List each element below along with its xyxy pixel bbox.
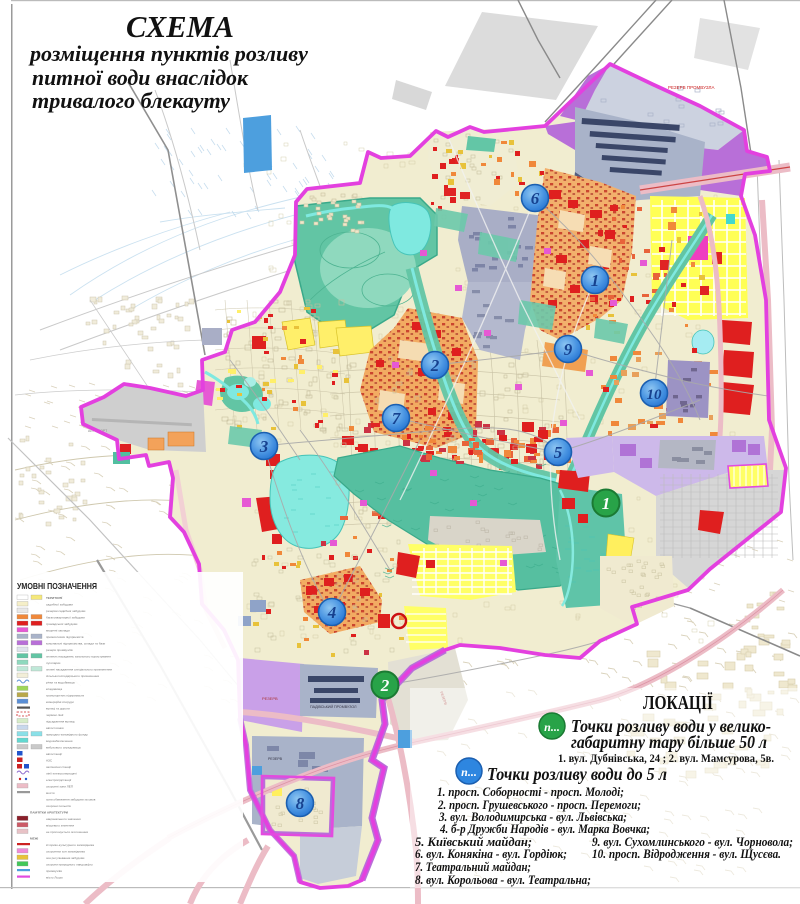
svg-text:2: 2 [430, 356, 440, 375]
svg-text:резерв промвузлів: резерв промвузлів [46, 648, 73, 652]
svg-text:медичні заклади: медичні заклади [46, 629, 70, 633]
svg-text:8: 8 [296, 794, 305, 813]
svg-text:5: 5 [554, 443, 563, 462]
svg-text:п...: п... [461, 765, 477, 779]
svg-text:автостанції: автостанції [46, 752, 62, 756]
svg-text:комунальні підприємства, склад: комунальні підприємства, склади та бази [46, 642, 106, 646]
svg-text:транспортних підприємств: транспортних підприємств [46, 694, 84, 698]
svg-text:СХЕМА: СХЕМА [126, 9, 234, 44]
svg-text:автостоянки: автостоянки [46, 726, 64, 730]
svg-text:садибної забудови: садибної забудови [46, 603, 73, 607]
svg-text:3: 3 [259, 437, 269, 456]
svg-text:охорони польотів: охорони польотів [46, 804, 71, 808]
svg-text:водозабезпечення: водозабезпечення [46, 739, 73, 743]
svg-text:громадської забудови: громадської забудови [46, 622, 78, 626]
svg-text:РЕЗЕРВ ПРОМВУЗЛА: РЕЗЕРВ ПРОМВУЗЛА [668, 85, 715, 90]
svg-text:9: 9 [564, 340, 573, 359]
svg-text:вибухового середовища: вибухового середовища [46, 746, 81, 750]
svg-text:1: 1 [602, 494, 611, 513]
svg-text:РЕЗЕРВ: РЕЗЕРВ [262, 696, 278, 701]
svg-text:залізничні станції: залізничні станції [46, 765, 71, 769]
svg-text:кладовища: кладовища [46, 687, 62, 691]
svg-text:8. вул. Корольова - вул. Театр: 8. вул. Корольова - вул. Театральна; [415, 872, 591, 887]
svg-text:зони обмеження забудови за умо: зони обмеження забудови за умов [46, 798, 96, 802]
svg-text:природно-заповідного фонду: природно-заповідного фонду [46, 733, 88, 737]
svg-text:розміщення пунктів розливу: розміщення пунктів розливу [28, 41, 308, 66]
svg-text:1: 1 [591, 271, 600, 290]
svg-text:Точки розливу води до 5 л: Точки розливу води до 5 л [487, 764, 667, 784]
svg-text:10. просп. Відродження - вул.: 10. просп. Відродження - вул. Щусєва. [592, 846, 781, 861]
svg-text:зон регулювання забудови: зон регулювання забудови [46, 856, 85, 860]
svg-text:мости: мости [46, 791, 55, 795]
svg-text:зелені насадження спеціального: зелені насадження спеціального призначен… [46, 668, 112, 672]
svg-text:ПАМ'ЯТКИ АРХІТЕКТУРИ: ПАМ'ЯТКИ АРХІТЕКТУРИ [30, 811, 69, 815]
svg-text:місцевого значення: місцевого значення [46, 824, 74, 828]
svg-text:ЛОКАЦІЇ: ЛОКАЦІЇ [643, 691, 713, 714]
svg-text:2: 2 [380, 676, 390, 695]
svg-text:лугопарки: лугопарки [46, 661, 61, 665]
svg-text:1. вул. Дубнівська, 24 ; 2. ву: 1. вул. Дубнівська, 24 ; 2. вул. Мамсуро… [558, 751, 774, 765]
svg-text:червоні лінії: червоні лінії [46, 713, 64, 717]
svg-text:МЕЖІ: МЕЖІ [30, 837, 38, 841]
svg-text:резерви садибної забудови: резерви садибної забудови [46, 609, 86, 613]
svg-text:промвузлів: промвузлів [46, 869, 62, 873]
svg-text:ПАДІВСЬКИЙ ПРОМВУЗОЛ: ПАДІВСЬКИЙ ПРОМВУЗОЛ [310, 705, 357, 709]
svg-text:п...: п... [544, 720, 560, 734]
svg-text:охорони природного ландшафту: охорони природного ландшафту [46, 863, 93, 867]
svg-text:річки та водоймища: річки та водоймища [46, 681, 75, 685]
svg-text:6: 6 [531, 189, 540, 208]
svg-text:4: 4 [327, 603, 337, 622]
svg-text:багатоквартирної забудови: багатоквартирної забудови [46, 616, 85, 620]
svg-text:10: 10 [647, 387, 663, 403]
svg-text:РЕЗЕРВ: РЕЗЕРВ [268, 757, 283, 761]
svg-text:сільськогосподарського признач: сільськогосподарського призначення [46, 674, 99, 678]
svg-text:охоронних зон заповідника: охоронних зон заповідника [46, 850, 85, 854]
svg-text:зелених насаджень загального к: зелених насаджень загального користуванн… [46, 655, 111, 659]
svg-text:промислових підприємств: промислових підприємств [46, 635, 84, 639]
svg-text:ТЕРИТОРІЇ: ТЕРИТОРІЇ [46, 596, 62, 600]
svg-text:національного значення: національного значення [46, 817, 81, 821]
svg-text:лінії електропередачі: лінії електропередачі [46, 772, 77, 776]
svg-text:комерційні споруди: комерційні споруди [46, 700, 74, 704]
svg-text:УМОВНІ ПОЗНАЧЕННЯ: УМОВНІ ПОЗНАЧЕННЯ [17, 582, 97, 591]
svg-text:вулиці та дороги: вулиці та дороги [46, 707, 70, 711]
svg-text:місто Луцьк: місто Луцьк [46, 876, 63, 880]
svg-text:тривалого блекауту: тривалого блекауту [32, 88, 230, 113]
svg-text:електропідстанції: електропідстанції [46, 778, 71, 782]
svg-text:історико-культурного заповідни: історико-культурного заповідника [46, 843, 94, 847]
svg-text:АЗС: АЗС [46, 759, 53, 763]
svg-text:охоронні зони ЛЕП: охоронні зони ЛЕП [46, 785, 73, 789]
svg-text:питної води внаслідок: питної води внаслідок [32, 65, 249, 90]
svg-text:габаритну тару більше 50 л: габаритну тару більше 50 л [571, 732, 767, 752]
svg-text:підсадження вулиць: підсадження вулиць [46, 720, 75, 724]
svg-text:не пропонується оголошення: не пропонується оголошення [46, 830, 88, 834]
